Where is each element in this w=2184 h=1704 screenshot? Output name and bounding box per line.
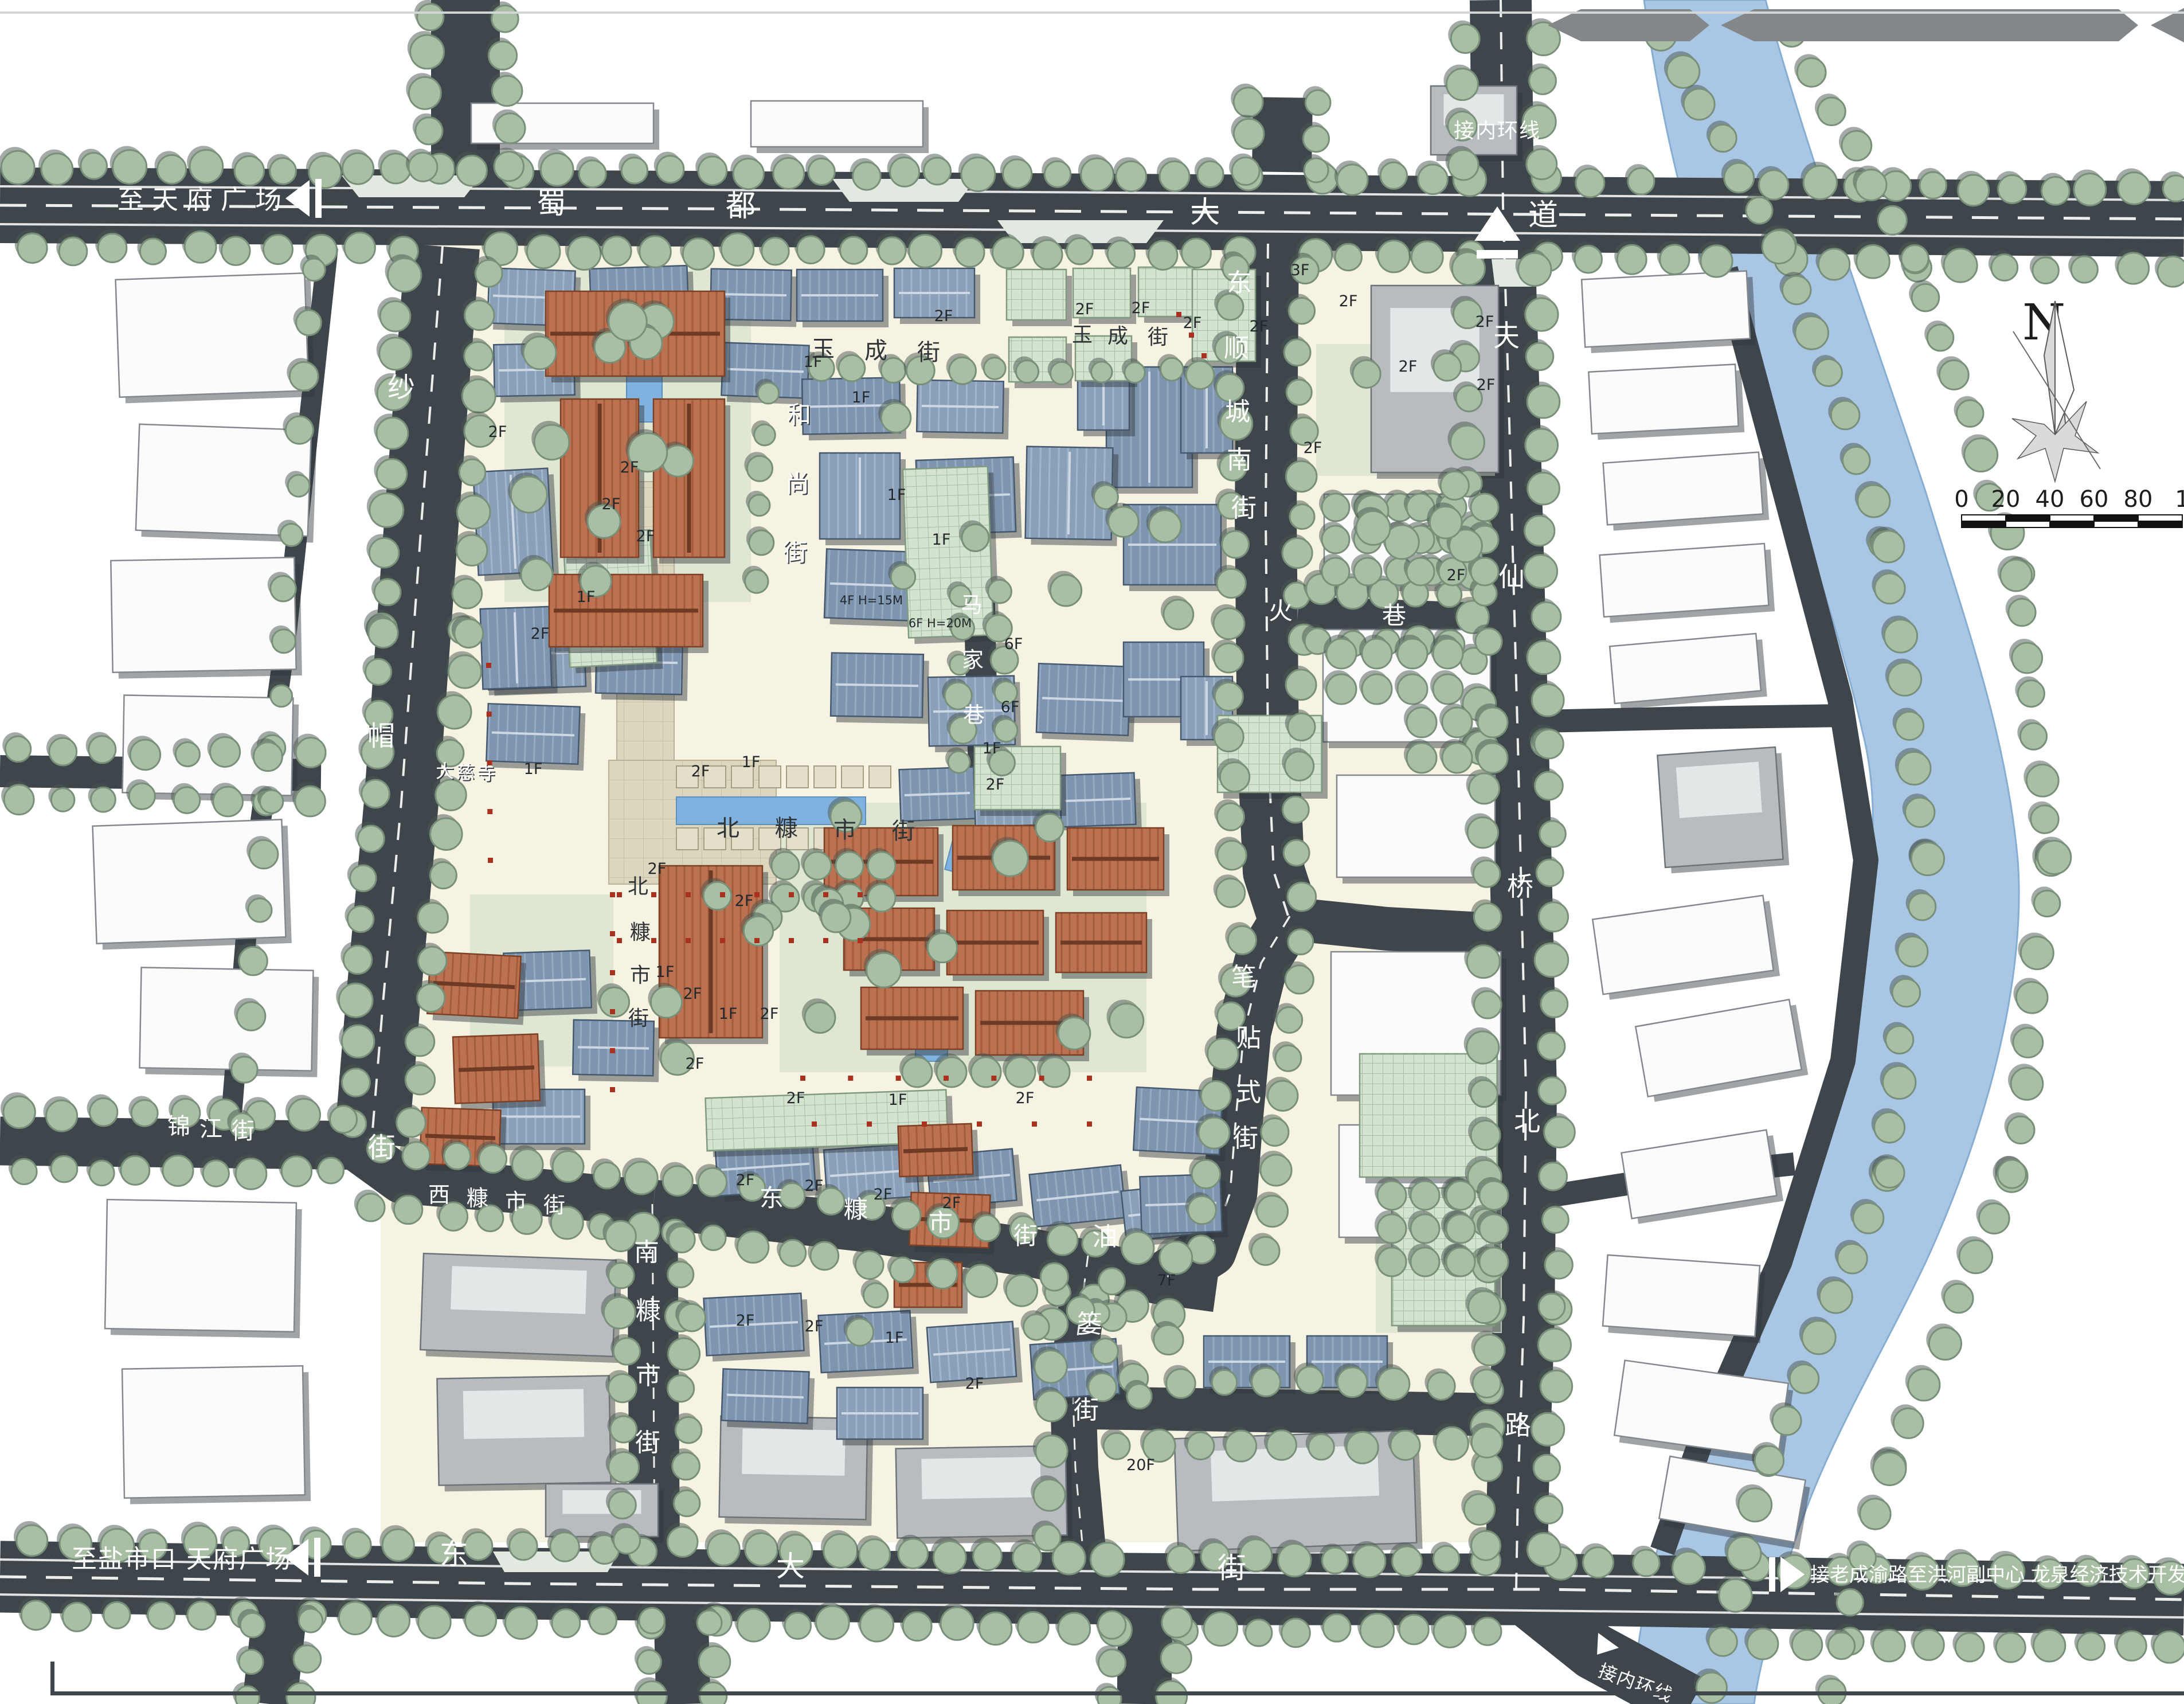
highway-direction-arrow (1548, 9, 1709, 41)
street-label: 街 (783, 538, 807, 566)
floor-label: 3F (1291, 261, 1310, 279)
floor-label: 2F (942, 1194, 961, 1212)
street-label: 笔 (1231, 963, 1257, 992)
floor-label: 2F (934, 307, 953, 325)
scale-tick-label: 40 (2036, 486, 2065, 513)
street-label: 道 (1528, 198, 1558, 233)
street-label: 街 (1148, 326, 1168, 349)
street-label: 锦 (167, 1113, 190, 1140)
floor-label: 1F (742, 753, 761, 771)
street-label: 东 (760, 1184, 784, 1212)
street-label: 玉 (1072, 323, 1093, 347)
street-label: 成 (864, 338, 887, 364)
sheet-top-line (0, 11, 2184, 14)
street-label: 大 (776, 1550, 805, 1583)
floor-label: 2F (1016, 1089, 1035, 1107)
floor-label: 2F (760, 1005, 779, 1023)
building-glass-green (1007, 269, 1066, 320)
floor-label: 2F (1475, 313, 1494, 331)
scale-tick-label: 0 (1954, 486, 1968, 513)
floor-label: 2F (602, 495, 621, 513)
floor-label: 2F (786, 1089, 805, 1107)
floor-label: 1F (719, 1005, 738, 1023)
building-white (1600, 544, 1769, 617)
street-label: 街 (892, 818, 915, 845)
floor-label: 1F (804, 353, 823, 371)
scale-tick-label: 1 (2175, 486, 2184, 513)
floor-label: 1F (524, 760, 543, 778)
site-plan-map: 蜀都大道纱帽街东顺城南街天仙桥北路火巷马家巷和和尚尚街街玉成街玉成街北糠市街北糠… (0, 0, 2184, 1704)
street-label: 街 (1231, 494, 1257, 523)
street-label: 帽 (367, 720, 395, 752)
street-label: 街 (628, 1007, 649, 1030)
building-white (105, 1199, 296, 1332)
building-white (1610, 634, 1761, 704)
street-label: 糠 (844, 1195, 868, 1224)
street-label: 仙 (1498, 561, 1525, 592)
street-label: 式 (1236, 1078, 1261, 1107)
floor-label: 2F (1183, 314, 1202, 332)
street-label: 尚 (785, 470, 809, 498)
street-label: 北 (628, 875, 648, 898)
street-label: 市 (630, 964, 651, 987)
street-label: 街 (635, 1428, 660, 1457)
street-label: 北 (1514, 1106, 1540, 1137)
building-white (1588, 364, 1738, 433)
direction-label: 至天府广场 (118, 184, 289, 215)
floor-label: 6F (1004, 635, 1023, 653)
building-white (1582, 271, 1750, 347)
building-white (751, 101, 923, 147)
floor-label: 2F (648, 860, 667, 878)
floor-label: 2F (736, 1312, 755, 1330)
street-label: 家 (962, 647, 984, 673)
street-label: 市 (636, 1361, 661, 1390)
floor-label: 2F (1447, 566, 1466, 584)
building-white (1603, 452, 1763, 525)
floor-label: 2F (805, 1177, 824, 1195)
floor-label: 2F (636, 527, 655, 545)
floor-label: 1F (887, 486, 906, 504)
floor-label: 2F (1399, 358, 1418, 376)
floor-label: 2F (986, 776, 1005, 794)
street-label: 巷 (963, 702, 985, 728)
floor-label: 20F (1126, 1456, 1155, 1474)
floor-label: 1F (885, 1329, 904, 1347)
street-label: 西 (428, 1182, 450, 1207)
building-white (116, 273, 309, 397)
street-label: 北 (717, 815, 739, 842)
street-label: 成 (1107, 325, 1128, 348)
street-label: 街 (1074, 1396, 1099, 1425)
street-label: 寺 (477, 763, 495, 784)
building-white (136, 424, 311, 536)
street-label: 城 (1225, 397, 1250, 427)
floor-label: 2F (686, 1055, 704, 1073)
scale-tick-label: 80 (2124, 486, 2153, 513)
floor-label: 2F (1250, 318, 1269, 335)
floor-label: 1F (852, 389, 871, 407)
street-label: 市 (929, 1209, 953, 1237)
street-label: 糠 (630, 921, 651, 944)
street-label: 和 (787, 401, 811, 429)
street-label: 街 (232, 1118, 255, 1144)
street-label: 慈 (456, 761, 475, 783)
floor-label: 2F (965, 1375, 984, 1393)
floor-label: 2F (1477, 376, 1496, 394)
direction-label: 接内环线 (1454, 119, 1541, 143)
building-white (139, 967, 313, 1070)
street-label: 市 (833, 817, 856, 843)
scale-tick-label: 20 (1991, 486, 2021, 513)
floor-label: 2F (1304, 439, 1322, 457)
street-label: 街 (1013, 1222, 1038, 1250)
building-white (111, 557, 296, 673)
street-label: 江 (199, 1116, 222, 1142)
street-label: 街 (917, 339, 940, 366)
street-label: 巷 (1382, 601, 1406, 630)
street-label: 糠 (467, 1186, 488, 1211)
floor-label: 2F (531, 625, 550, 643)
street-label: 都 (726, 189, 756, 224)
floor-label: 2F (1075, 300, 1094, 318)
floor-label: 1F (983, 740, 1001, 757)
street-label: 路 (1505, 1410, 1531, 1441)
street-label: 马 (961, 592, 983, 617)
street-label: 纱 (388, 372, 415, 404)
floor-label: 6F H=20M (909, 616, 972, 630)
master-plan-page: 蜀都大道纱帽街东顺城南街天仙桥北路火巷马家巷和和尚尚街街玉成街玉成街北糠市街北糠… (0, 0, 2184, 1704)
street-label: 大 (1190, 196, 1220, 230)
floor-label: 1F (656, 963, 675, 981)
street-label: 大 (436, 760, 454, 782)
street-label: 火 (1269, 597, 1293, 625)
floor-label: 2F (1132, 299, 1150, 317)
street-label: 街 (1233, 1124, 1258, 1153)
street-label: 糠 (775, 815, 798, 842)
floor-label: 1F (889, 1091, 907, 1109)
street-label: 市 (505, 1189, 527, 1214)
street-label: 南 (634, 1238, 659, 1267)
street-label: 街 (543, 1193, 565, 1218)
street-label: 东 (440, 1538, 468, 1571)
floor-label: 2F (736, 1171, 755, 1189)
sheet-bottom-line (50, 1691, 2184, 1695)
street-label: 南 (1227, 445, 1252, 475)
street-label: 篓 (1077, 1310, 1102, 1339)
street-label: 街 (1218, 1551, 1246, 1585)
floor-label: 6F (1001, 698, 1020, 716)
floor-label: 7F (1157, 1272, 1176, 1289)
street-label: 糠 (636, 1296, 661, 1326)
street-label: 街 (368, 1132, 396, 1164)
floor-label: 2F (805, 1318, 824, 1335)
street-label: 桥 (1507, 871, 1533, 902)
floor-label: 1F (577, 588, 596, 606)
direction-label: 接老成渝路至洪河副中心 龙泉经济技术开发区 (1810, 1564, 2184, 1586)
floor-label: 2F (488, 423, 507, 441)
street-label: 蜀 (537, 186, 566, 221)
scale-tick-label: 60 (2080, 486, 2109, 513)
floor-label: 2F (874, 1186, 893, 1203)
floor-label: 2F (683, 985, 702, 1003)
street-label: 贴 (1236, 1023, 1261, 1053)
floor-label: 2F (620, 459, 639, 476)
floor-label: 4F H=15M (840, 593, 903, 607)
building-white (122, 1366, 305, 1498)
street-label: 顺 (1224, 334, 1249, 363)
floor-label: 1F (932, 531, 951, 549)
floor-label: 2F (1339, 292, 1358, 310)
street-label: 东 (1227, 268, 1252, 298)
direction-label: 至盐市口 天府广场 (72, 1545, 292, 1574)
building-white (1603, 1255, 1760, 1336)
floor-label: 2F (691, 763, 710, 780)
floor-label: 2F (735, 892, 754, 910)
highway-direction-arrow (1721, 9, 2138, 41)
street-label: 油 (1092, 1222, 1117, 1252)
street-label: 天 (1493, 322, 1520, 353)
